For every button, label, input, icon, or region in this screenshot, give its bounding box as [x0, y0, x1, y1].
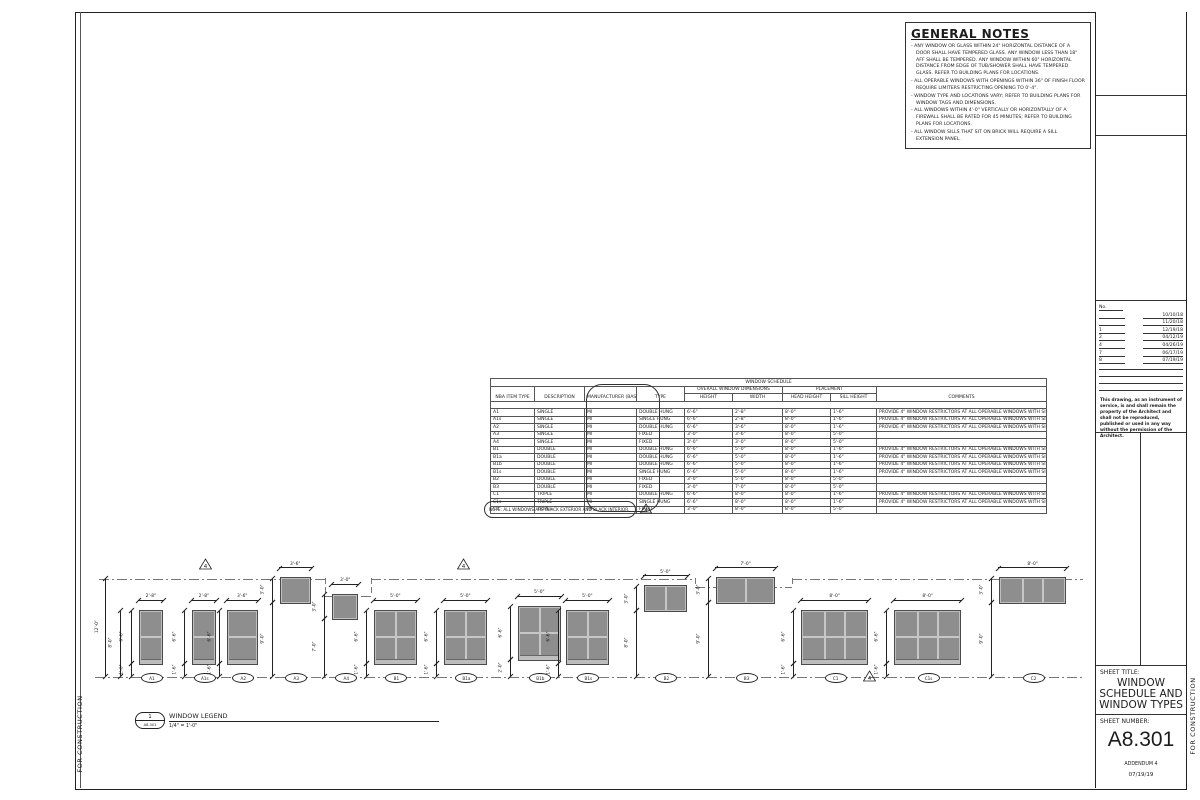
schedule-cell: DOUBLE [535, 454, 585, 462]
schedule-cell: 3'-0" [685, 439, 733, 447]
dimension-label: 8'-0" [625, 638, 630, 648]
window-tag-B1: B1 [385, 673, 407, 683]
legend-scale: 1/4" = 1'-0" [169, 724, 439, 729]
schedule-cell: SINGLE HUNG [637, 416, 685, 424]
width-dimension-label: 5'-0" [517, 590, 562, 595]
schedule-cell: MI [585, 446, 637, 454]
dimension-tick [891, 598, 897, 604]
schedule-row: B1DOUBLEMIDOUBLE HUNG6'-6"5'-0"8'-0"1'-6… [491, 446, 1047, 454]
width-dimension-label: 3'-6" [279, 562, 312, 567]
dimension-label: 6'-6" [875, 632, 880, 642]
width-dimension: 8'-0" [800, 600, 869, 601]
window-tag-B2: B2 [655, 673, 677, 683]
width-dimension: 5'-0" [565, 600, 610, 601]
dimension-label: 3'-0" [980, 585, 985, 595]
schedule-cell: DOUBLE HUNG [637, 409, 685, 417]
dimension-line-vertical [558, 611, 559, 664]
schedule-cell: 8'-0" [783, 476, 831, 484]
dimension-tick [371, 598, 377, 604]
schedule-row: B1aDOUBLEMIDOUBLE HUNG6'-6"5'-0"8'-0"1'-… [491, 454, 1047, 462]
window-bottom-rail [568, 659, 607, 663]
window-bottom-rail [194, 659, 214, 663]
window-sash-bar [229, 636, 256, 638]
schedule-cell: SINGLE [535, 431, 585, 439]
revision-triangle-4: 4 [863, 670, 876, 682]
dimension-line-vertical [793, 611, 794, 664]
schedule-row: B2DOUBLEMIFIXED3'-0"5'-0"8'-0"5'-0" [491, 476, 1047, 484]
schedule-cell: DOUBLE HUNG [637, 491, 685, 499]
general-notes-list: - ANY WINDOW OR GLASS WITHIN 24" HORIZON… [911, 44, 1085, 143]
general-note-item: - ANY WINDOW OR GLASS WITHIN 24" HORIZON… [911, 44, 1085, 78]
schedule-cell: DOUBLE [535, 476, 585, 484]
dimension-tick [713, 565, 719, 571]
schedule-cell: 3'-0" [685, 506, 733, 514]
window-elevation-B1 [375, 611, 416, 664]
dimension-line-vertical [991, 603, 992, 676]
dimension-tick [189, 598, 195, 604]
schedule-row: B1sDOUBLEMISINGLE HUNG6'-6"5'-0"8'-0"1'-… [491, 469, 1047, 477]
revision-empty-row [1099, 383, 1183, 384]
window-sash-bar [896, 636, 959, 638]
window-bottom-rail [803, 659, 866, 663]
window-elevation-A2 [228, 611, 257, 664]
window-sash-bar [376, 636, 415, 638]
schedule-cell: A1 [491, 409, 535, 417]
schedule-cell: 1'-6" [831, 446, 877, 454]
width-dimension: 5'-0" [643, 575, 688, 576]
width-dimension: 5'-0" [517, 596, 562, 597]
schedule-header-cell: WIDTH [733, 394, 783, 402]
schedule-cell: 3'-0" [685, 431, 733, 439]
dimension-label: 8'-0" [109, 638, 114, 648]
revision-row: 10/10/18 [1099, 311, 1183, 319]
for-construction-stamp-left: FOR CONSTRUCTION [76, 679, 84, 789]
window-tag-A2: A2 [232, 673, 254, 683]
schedule-row: A3SINGLEMIFIXED3'-0"3'-6"8'-0"5'-0" [491, 431, 1047, 439]
width-dimension: 7'-0" [715, 567, 776, 568]
schedule-row: B1bDOUBLEMIDOUBLE HUNG6'-6"5'-0"8'-0"1'-… [491, 461, 1047, 469]
dimension-line-vertical [991, 578, 992, 602]
schedule-cell: DOUBLE [535, 469, 585, 477]
schedule-cell: PROVIDE 4" WINDOW RESTRICTORS AT ALL OPE… [877, 424, 1047, 432]
dimension-tick [996, 565, 1002, 571]
schedule-cell [877, 431, 1047, 439]
dimension-label: 6'-6" [547, 632, 552, 642]
window-sash-bar [446, 636, 485, 638]
schedule-header-cell: MANUFACTURER (BASIS OF DESIGN) [585, 386, 637, 401]
dimension-tick [136, 598, 142, 604]
schedule-cell: 1'-6" [831, 491, 877, 499]
width-dimension-label: 5'-0" [643, 570, 688, 575]
window-bottom-rail [520, 655, 559, 659]
schedule-cell [877, 439, 1047, 447]
width-dimension: 2'-8" [191, 600, 217, 601]
schedule-cell: 5'-0" [733, 454, 783, 462]
schedule-cell: 6'-6" [685, 409, 733, 417]
schedule-cell: 6'-6" [685, 416, 733, 424]
schedule-note: NOTE: ALL WINDOWS ARE BLACK EXTERIOR AND… [489, 507, 629, 512]
dimension-label: 6'-6" [173, 632, 178, 642]
schedule-cell: SINGLE [535, 424, 585, 432]
window-tag-A1: A1 [141, 673, 163, 683]
schedule-cell: MI [585, 469, 637, 477]
schedule-cell: B1s [491, 469, 535, 477]
dimension-tick [515, 594, 521, 600]
schedule-row: A2SINGLEMIDOUBLE HUNG6'-6"3'-6"8'-0"1'-6… [491, 424, 1047, 432]
schedule-cell: MI [585, 409, 637, 417]
schedule-cell: 6'-6" [685, 454, 733, 462]
title-block-divider [1096, 95, 1186, 96]
window-bottom-rail [446, 659, 485, 663]
schedule-cell: 6'-6" [685, 469, 733, 477]
title-block-divider [1096, 432, 1186, 433]
schedule-cell: 6'-6" [685, 491, 733, 499]
schedule-header-cell: COMMENTS [877, 386, 1047, 401]
schedule-cell: 2'-8" [733, 409, 783, 417]
dimension-label: 6'-6" [499, 628, 504, 638]
width-dimension-label: 5'-0" [443, 594, 488, 599]
schedule-header-cell: PLACEMENT [783, 386, 877, 394]
schedule-cell [877, 506, 1047, 514]
schedule-cell: 5'-0" [831, 484, 877, 492]
schedule-cell: 8'-0" [783, 416, 831, 424]
revision-row: 706/17/19 [1099, 349, 1183, 357]
width-dimension-label: 8'-0" [800, 594, 869, 599]
dimension-label: 9'-0" [697, 634, 702, 644]
window-mullion [665, 587, 667, 609]
detail-number: 1 [136, 713, 164, 721]
schedule-cell: DOUBLE HUNG [637, 454, 685, 462]
schedule-cell: DOUBLE HUNG [637, 461, 685, 469]
dimension-label: 9'-0" [980, 634, 985, 644]
width-dimension-label: 5'-0" [565, 594, 610, 599]
schedule-cell: A4 [491, 439, 535, 447]
dimension-label: 6'-6" [208, 632, 213, 642]
schedule-cell: PROVIDE 4" WINDOW RESTRICTORS AT ALL OPE… [877, 416, 1047, 424]
width-dimension-label: 8'-0" [893, 594, 962, 599]
schedule-cell: C1 [491, 491, 535, 499]
window-elevation-A3 [281, 578, 310, 602]
general-note-item: - WINDOW TYPE AND LOCATIONS VARY; REFER … [911, 94, 1085, 108]
sheet-title-label: SHEET TITLE: [1100, 669, 1140, 676]
revision-triangle-4: 4 [640, 503, 652, 514]
schedule-cell: B1b [491, 461, 535, 469]
schedule-cell: MI [585, 454, 637, 462]
schedule-cell: 5'-0" [831, 439, 877, 447]
schedule-cell: SINGLE [535, 416, 585, 424]
width-dimension: 3'-6" [279, 567, 312, 568]
revision-row: 404/26/19 [1099, 341, 1183, 349]
revision-empty-row [1099, 390, 1183, 391]
dimension-line-vertical [436, 611, 437, 664]
revision-number [1099, 320, 1125, 326]
dimension-tick [224, 598, 230, 604]
dimension-label: 9'-0" [261, 634, 266, 644]
width-dimension: 8'-0" [998, 567, 1067, 568]
dimension-label: 1'-6" [173, 664, 178, 674]
schedule-cell: DOUBLE [535, 446, 585, 454]
width-dimension-label: 5'-0" [373, 594, 418, 599]
general-notes-title: GENERAL NOTES [911, 27, 1085, 41]
title-block-divider [1096, 714, 1186, 715]
schedule-cell: FIXED [637, 431, 685, 439]
dimension-line-vertical [324, 595, 325, 619]
dimension-label: 3'-0" [261, 585, 266, 595]
revision-date: 07/19/19 [1143, 358, 1183, 364]
window-elevation-B2 [645, 586, 686, 610]
revision-date: 06/17/19 [1143, 351, 1183, 357]
schedule-header-cell: TYPE [637, 386, 685, 401]
revision-date: 12/19/18 [1143, 328, 1183, 334]
width-dimension-label: 3'-0" [331, 578, 359, 583]
schedule-row: A4SINGLEMIFIXED3'-0"3'-0"8'-0"5'-0" [491, 439, 1047, 447]
dimension-label: 6'-6" [355, 632, 360, 642]
schedule-header-cell: SILL HEIGHT [831, 394, 877, 402]
title-block-vertical-divider [1140, 432, 1141, 665]
head-line-step [792, 578, 793, 586]
elevation-canvas: 12'-0"2'-8"8'-0"6'-6"1'-6"A12'-8"6'-6"1'… [95, 548, 1085, 700]
revision-row: 807/19/19 [1099, 357, 1183, 365]
schedule-cell: DOUBLE HUNG [637, 446, 685, 454]
window-elevation-C1s [895, 611, 960, 664]
addendum: ADDENDUM 4 [1096, 762, 1186, 767]
schedule-cell: 8'-0" [783, 409, 831, 417]
schedule-cell: 1'-6" [831, 454, 877, 462]
schedule-cell: 8'-0" [783, 446, 831, 454]
schedule-cell: MI [585, 461, 637, 469]
title-block-divider [1096, 300, 1186, 301]
schedule-cell: DOUBLE HUNG [637, 424, 685, 432]
sheet-number-label: SHEET NUMBER: [1100, 718, 1149, 725]
dimension-label: 7'-0" [313, 642, 318, 652]
window-tag-C1: C1 [825, 673, 847, 683]
window-bottom-rail [896, 659, 959, 663]
schedule-cell [877, 484, 1047, 492]
window-mullion [1022, 579, 1024, 601]
schedule-cell: 1'-6" [831, 416, 877, 424]
svg-text:4: 4 [462, 564, 466, 570]
schedule-cell: 8'-0" [783, 431, 831, 439]
schedule-cell: 3'-0" [733, 439, 783, 447]
dimension-label: 1'-6" [355, 664, 360, 674]
revision-row: 204/12/19 [1099, 334, 1183, 342]
schedule-row: A1sSINGLEMISINGLE HUNG6'-6"2'-8"8'-0"1'-… [491, 416, 1047, 424]
window-tag-C2: C2 [1023, 673, 1045, 683]
schedule-cell: 8'-0" [783, 506, 831, 514]
dimension-line-vertical [131, 611, 132, 664]
dimension-label: 3'-0" [313, 601, 318, 611]
head-line-step [371, 578, 372, 594]
schedule-cell: 6'-6" [685, 461, 733, 469]
window-sash-bar [520, 632, 559, 634]
head-height-line [371, 578, 695, 580]
revision-empty-row [1099, 376, 1183, 377]
dimension-label: 12'-0" [95, 620, 100, 633]
width-dimension: 5'-0" [373, 600, 418, 601]
dimension-label: 6'-6" [120, 632, 125, 642]
dimension-line-vertical [272, 603, 273, 676]
schedule-cell: SINGLE HUNG [637, 469, 685, 477]
schedule-cell: 6'-6" [685, 424, 733, 432]
detail-sheet-ref: A8.301 [136, 721, 164, 728]
revision-row: 11/20/18 [1099, 319, 1183, 327]
window-sash-bar [568, 636, 607, 638]
schedule-cell: 8'-0" [783, 484, 831, 492]
window-mullion [745, 579, 747, 601]
dimension-label: 1'-6" [425, 664, 430, 674]
schedule-cell: 1'-6" [831, 461, 877, 469]
schedule-cell: 8'-0" [783, 439, 831, 447]
schedule-cell [877, 476, 1047, 484]
schedule-cell: 3'-6" [733, 431, 783, 439]
revision-cloud-note: NOTE: ALL WINDOWS ARE BLACK EXTERIOR AND… [484, 501, 636, 518]
schedule-cell: 8'-0" [783, 461, 831, 469]
window-tag-B1s: B1s [577, 673, 599, 683]
schedule-cell: 5'-0" [733, 469, 783, 477]
dimension-line-vertical [708, 578, 709, 602]
revision-table: No. 10/10/18 11/20/18112/19/18204/12/194… [1099, 305, 1183, 364]
window-elevation-B3 [717, 578, 774, 602]
schedule-cell: 3'-0" [685, 484, 733, 492]
schedule-cell: B3 [491, 484, 535, 492]
schedule-cell: 8'-0" [733, 506, 783, 514]
revision-triangle-label: 4 [644, 508, 647, 514]
revision-triangle-4: 4 [457, 558, 470, 570]
window-bottom-rail [141, 659, 161, 663]
dimension-tick [329, 582, 335, 588]
schedule-cell: PROVIDE 4" WINDOW RESTRICTORS AT ALL OPE… [877, 491, 1047, 499]
schedule-cell: 6'-6" [685, 446, 733, 454]
sheet-title: WINDOW SCHEDULE AND WINDOW TYPES [1098, 678, 1184, 711]
window-elevation-C1 [802, 611, 867, 664]
dimension-tick [441, 598, 447, 604]
dimension-tick [563, 598, 569, 604]
schedule-header-cell: HEIGHT [685, 394, 733, 402]
schedule-cell: 5'-0" [733, 446, 783, 454]
dimension-line-vertical [219, 611, 220, 664]
revision-row: 112/19/18 [1099, 326, 1183, 334]
revision-date: 04/12/19 [1143, 335, 1183, 341]
revision-number: 4 [1099, 343, 1125, 349]
schedule-cell: 3'-6" [733, 424, 783, 432]
revision-number: 7 [1099, 351, 1125, 357]
width-dimension: 2'-8" [138, 600, 164, 601]
for-construction-stamp-right: FOR CONSTRUCTION [1189, 661, 1197, 771]
schedule-cell: MI [585, 484, 637, 492]
copyright-disclaimer: This drawing, as an instrument of servic… [1100, 398, 1182, 440]
window-elevation-C2 [1000, 578, 1065, 602]
sheet-number: A8.301 [1096, 728, 1186, 752]
schedule-cell: 8'-0" [783, 469, 831, 477]
general-notes-box: GENERAL NOTES - ANY WINDOW OR GLASS WITH… [905, 22, 1091, 149]
title-block: No. 10/10/18 11/20/18112/19/18204/12/194… [1095, 12, 1186, 788]
width-dimension: 3'-0" [331, 584, 359, 585]
schedule-cell: TRIPLE [535, 491, 585, 499]
schedule-cell: 2'-8" [733, 416, 783, 424]
schedule-cell: FIXED [637, 439, 685, 447]
window-schedule-table: WINDOW SCHEDULENBA ITEM TYPEDESCRIPTIONM… [490, 378, 1047, 514]
window-bottom-rail [376, 659, 415, 663]
drawing-sheet: GENERAL NOTES - ANY WINDOW OR GLASS WITH… [0, 0, 1200, 800]
window-elevation-A4 [333, 595, 357, 619]
dimension-label: 2'-0" [499, 662, 504, 672]
legend-title: WINDOW LEGEND [169, 712, 439, 722]
schedule-cell: 1'-6" [831, 424, 877, 432]
schedule-cell: 8'-0" [733, 491, 783, 499]
revision-empty-row [1099, 369, 1183, 370]
general-note-item: - ALL WINDOWS WITHIN 4'-0" VERTICALLY OR… [911, 108, 1085, 128]
revision-number: 1 [1099, 328, 1125, 334]
width-dimension-label: 8'-0" [998, 562, 1067, 567]
schedule-cell: 6'-6" [685, 499, 733, 507]
schedule-header-cell: HEAD HEIGHT [783, 394, 831, 402]
window-elevation-B1b [519, 607, 560, 660]
width-dimension-label: 3'-6" [226, 594, 259, 599]
legend-callout: 1 A8.301 WINDOW LEGEND 1/4" = 1'-0" [135, 712, 439, 729]
dimension-line-vertical [636, 611, 637, 676]
window-tag-B3: B3 [736, 673, 758, 683]
revision-number [1099, 313, 1125, 319]
schedule-cell: MI [585, 491, 637, 499]
schedule-cell: A1s [491, 416, 535, 424]
dimension-tick [277, 565, 283, 571]
revision-date: 10/10/18 [1143, 313, 1183, 319]
schedule-cell: PROVIDE 4" WINDOW RESTRICTORS AT ALL OPE… [877, 461, 1047, 469]
schedule-cell: A3 [491, 431, 535, 439]
svg-text:4: 4 [868, 676, 872, 682]
revision-number: 8 [1099, 358, 1125, 364]
width-dimension: 8'-0" [893, 600, 962, 601]
window-mullion [1042, 579, 1044, 601]
schedule-cell: MI [585, 476, 637, 484]
window-sash-bar [141, 636, 161, 638]
window-tag-A3: A3 [285, 673, 307, 683]
schedule-cell: MI [585, 439, 637, 447]
schedule-cell: 8'-0" [733, 499, 783, 507]
dimension-line-vertical [184, 611, 185, 664]
window-sash-bar [803, 636, 866, 638]
width-dimension-label: 7'-0" [715, 562, 776, 567]
title-block-divider [1096, 665, 1186, 666]
schedule-cell: 8'-0" [783, 491, 831, 499]
revision-date: 11/20/18 [1143, 320, 1183, 326]
schedule-cell: 8'-0" [783, 424, 831, 432]
dimension-line-vertical [636, 586, 637, 610]
schedule-cell: 7'-0" [733, 484, 783, 492]
binding-edge-line [80, 12, 81, 788]
revision-number: 2 [1099, 335, 1125, 341]
schedule-header-cell: NBA ITEM TYPE [491, 386, 535, 401]
dimension-line-vertical [105, 578, 106, 676]
window-tag-C1s: C1s [918, 673, 940, 683]
dimension-line-vertical [708, 603, 709, 676]
schedule-spacer-row [491, 401, 1047, 409]
dimension-line-vertical [324, 619, 325, 676]
dimension-label: 1'-6" [782, 664, 787, 674]
revision-triangle-4: 4 [199, 558, 212, 570]
window-elevation-A1 [140, 611, 162, 664]
schedule-cell: 5'-0" [831, 431, 877, 439]
general-note-item: - ALL WINDOW SILLS THAT SIT ON BRICK WIL… [911, 130, 1085, 144]
dimension-label: 1'-6" [208, 664, 213, 674]
general-note-item: - ALL OPERABLE WINDOWS WITH OPENINGS WIT… [911, 79, 1085, 93]
schedule-row: A1SINGLEMIDOUBLE HUNG6'-6"2'-8"8'-0"1'-6… [491, 409, 1047, 417]
schedule-cell: MI [585, 416, 637, 424]
schedule-cell: MI [585, 431, 637, 439]
schedule-cell: 3'-0" [685, 476, 733, 484]
window-bottom-rail [229, 659, 256, 663]
window-elevation-B1s [567, 611, 608, 664]
